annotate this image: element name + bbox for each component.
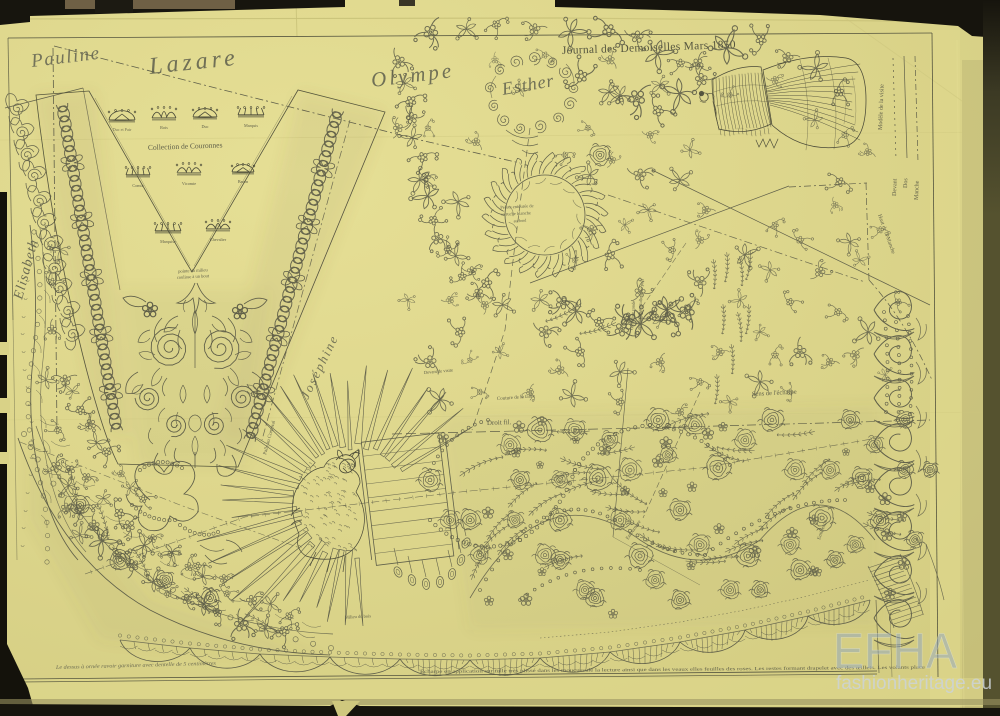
svg-text:Manche: Manche (914, 180, 921, 200)
svg-text:Devant: Devant (892, 178, 899, 196)
svg-text:au fond: au fond (513, 218, 527, 224)
svg-text:Duc: Duc (202, 124, 209, 129)
svg-text:Dos: Dos (903, 178, 909, 189)
svg-text:Duc et Pair: Duc et Pair (113, 127, 132, 132)
svg-text:Marquis: Marquis (244, 123, 258, 128)
svg-text:Rois: Rois (160, 125, 168, 130)
svg-text:fashionheritage.eu: fashionheritage.eu (836, 673, 992, 694)
svg-text:EFHA: EFHA (833, 623, 958, 679)
svg-text:Vicomte: Vicomte (182, 181, 196, 186)
